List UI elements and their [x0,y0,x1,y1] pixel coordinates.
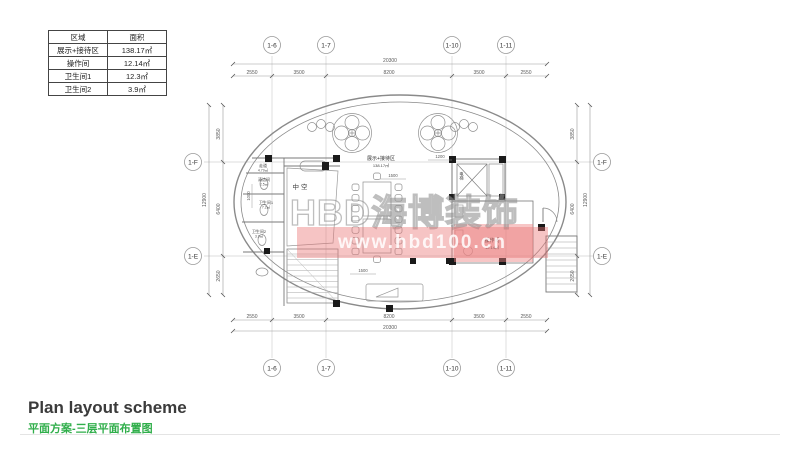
dim-interior: 1500 [388,173,398,178]
dim-left-seg: 3850 [216,128,222,139]
room-label-cleaning: 清洁间 [258,176,270,182]
dim-interior: 1000 [246,191,251,201]
grid-label: 1-F [188,160,198,167]
page-title-en: Plan layout scheme [28,398,187,418]
dim-right-total: 12900 [583,193,589,207]
grid-label: 1-F [597,160,607,167]
dim-interior: 1500 [358,268,368,273]
table-row: 展示+接待区 138.17㎡ [49,44,167,57]
grid-label: 1-10 [445,366,458,373]
table-row: 卫生间1 12.3㎡ [49,70,167,83]
grid-label: 1-E [188,254,199,261]
dim-bottom-seg: 2550 [246,314,257,320]
room-label-corridor: 走道 [259,162,267,168]
dim-bottom-seg: 2550 [520,314,531,320]
footer-divider [20,434,780,435]
grid-label: 1-7 [321,43,331,50]
watermark-url: www.hbd100.cn [338,232,507,254]
grid-label: 1-6 [267,366,277,373]
dim-bottom-total: 20300 [383,325,397,331]
dim-top-seg: 3500 [293,70,304,76]
dim-right-seg: 6400 [570,203,576,214]
area-summary-table: 区域 面积 展示+接待区 138.17㎡ 操作间 12.14㎡ 卫生间1 12.… [48,30,167,96]
room-area-corridor: 4.79㎡ [258,168,269,173]
dim-top-seg: 2550 [520,70,531,76]
room-area-exhibition: 138.17㎡ [373,162,389,168]
drawing-sheet: 20300 2550 3500 8200 3500 2550 2550 3500… [0,0,800,450]
grid-label: 1-11 [500,43,513,50]
dim-top-total: 20300 [383,58,397,64]
dim-right-seg: 3850 [570,128,576,139]
room-label-exhibition: 展示+接待区 [367,155,395,162]
dim-top-seg: 2550 [246,70,257,76]
room-area-toilet2: 3.9㎡ [255,234,264,239]
watermark-band: www.hbd100.cn [297,227,548,258]
dim-bottom-seg: 3500 [293,314,304,320]
grid-label: 1-10 [445,43,458,50]
room-label-elevator: 电梯 [459,170,465,181]
table-header-area: 面积 [108,31,167,44]
grid-label: 1-7 [321,366,331,373]
dim-bottom-seg: 8200 [383,314,394,320]
table-row: 卫生间2 3.9㎡ [49,83,167,96]
dim-left-seg: 6400 [216,203,222,214]
table-header-row: 区域 面积 [49,31,167,44]
room-area-cleaning: 2.5㎡ [260,182,269,187]
dim-left-total: 12900 [202,193,208,207]
dim-top-seg: 8200 [383,70,394,76]
room-label-toilet2: 卫生间2 [252,228,267,234]
room-area-toilet1: 7.2㎡ [262,205,271,210]
grid-label: 1-6 [267,43,277,50]
table-row: 操作间 12.14㎡ [49,57,167,70]
dim-interior: 1200 [435,154,445,159]
grid-label: 1-E [597,254,608,261]
grid-label: 1-11 [500,366,513,373]
dim-top-seg: 3500 [473,70,484,76]
table-header-region: 区域 [49,31,108,44]
dim-left-seg: 2650 [216,270,222,281]
dim-bottom-seg: 3500 [473,314,484,320]
room-label-toilet1: 卫生间1 [259,199,274,205]
